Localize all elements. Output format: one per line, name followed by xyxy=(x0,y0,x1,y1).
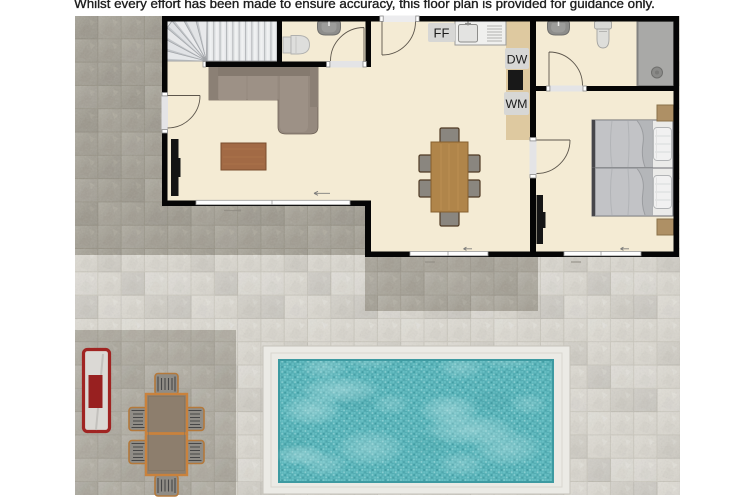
svg-text:Whilst every effort has been m: Whilst every effort has been made to ens… xyxy=(74,0,655,11)
svg-text:DW: DW xyxy=(507,53,528,67)
svg-text:FF: FF xyxy=(434,26,450,41)
svg-text:WM: WM xyxy=(505,97,527,111)
